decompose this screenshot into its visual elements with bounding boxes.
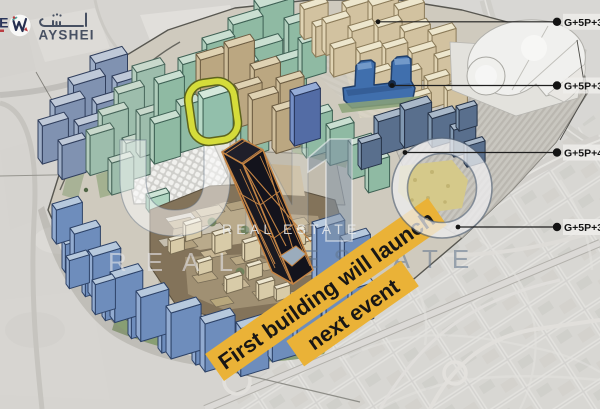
svg-text:REAL ESTATE: REAL ESTATE (222, 221, 361, 237)
svg-text:G+5P+4: G+5P+4 (564, 148, 600, 160)
svg-text:G+5P+3: G+5P+3 (564, 81, 600, 93)
svg-text:G+5P+3: G+5P+3 (564, 17, 600, 29)
svg-text:G+5P+3: G+5P+3 (564, 222, 600, 234)
svg-text:AYSHEI: AYSHEI (39, 28, 95, 43)
svg-text:REAL: REAL (108, 247, 252, 277)
svg-text:CE: CE (0, 15, 8, 31)
